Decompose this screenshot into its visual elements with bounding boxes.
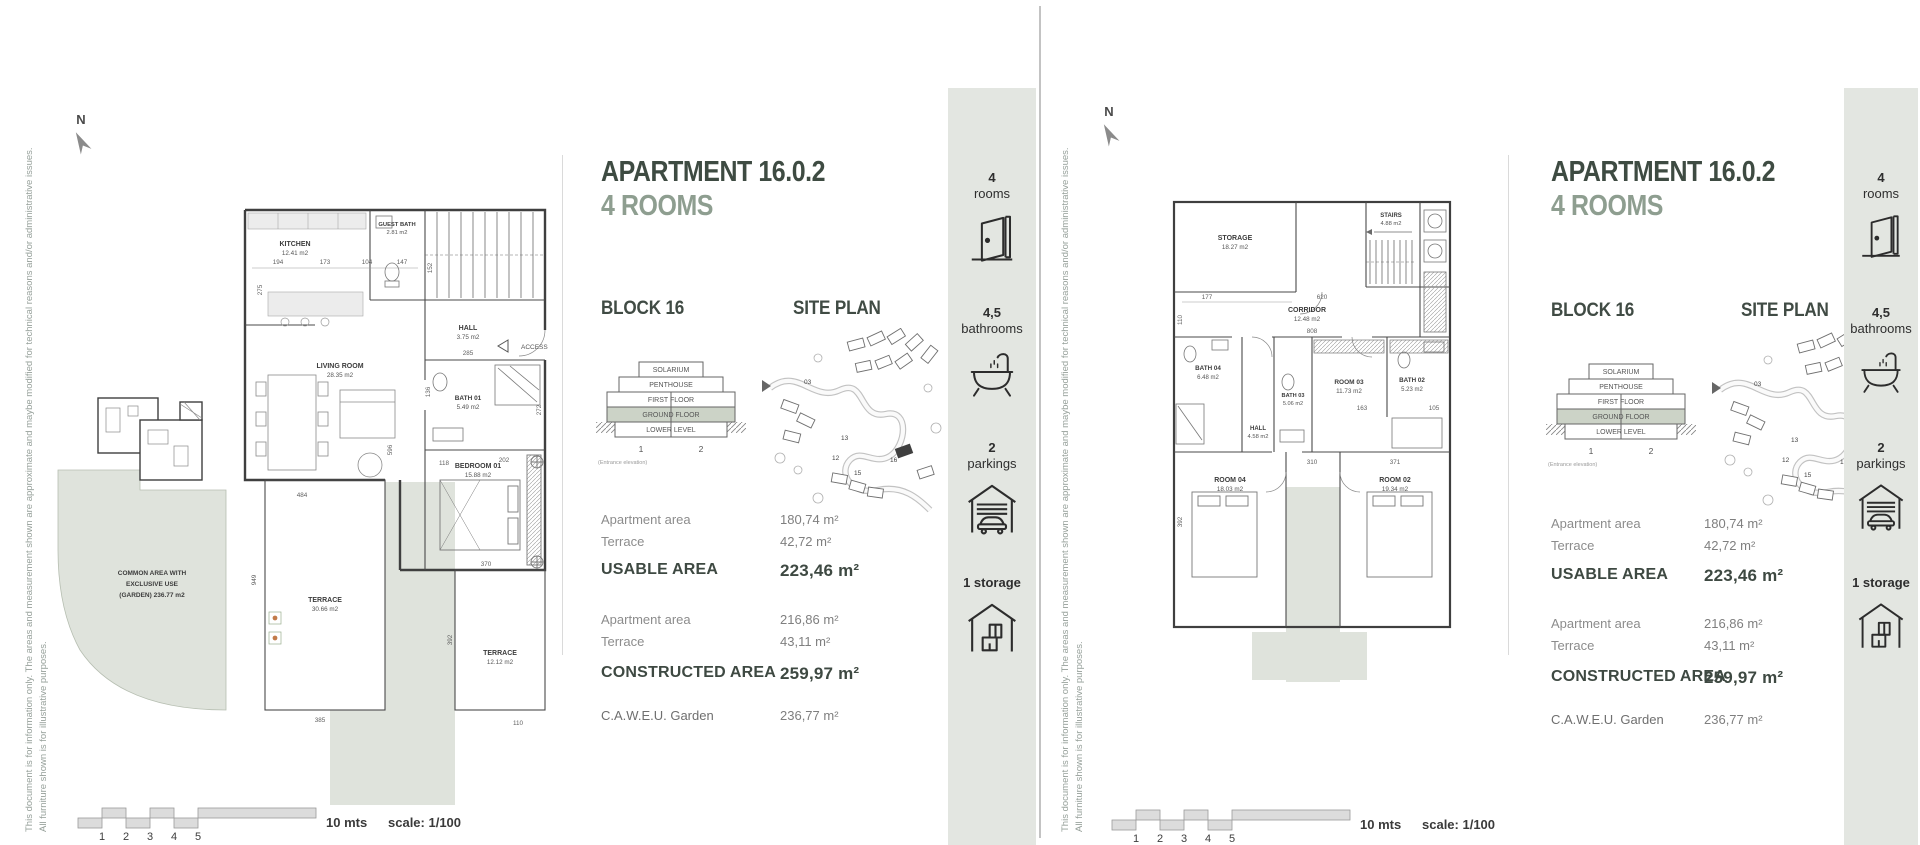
utility-closets (1424, 210, 1446, 332)
sidebar-item-parkings: 2 parkings (1844, 440, 1918, 538)
level-label: PENTHOUSE (649, 382, 693, 389)
room-area: 4.88 m2 (1381, 221, 1402, 227)
sidebar-item-bathrooms: 4,5 bathrooms (948, 305, 1036, 405)
stairs (1366, 229, 1416, 284)
site-number: 15 (1804, 472, 1812, 479)
dim: 118 (439, 460, 450, 467)
dim: 620 (1317, 294, 1328, 301)
room-label: HALL (1250, 426, 1266, 432)
parkings-count: 2 (1844, 440, 1918, 456)
brochure-spread: { "disclaimer": { "line1": "This documen… (0, 0, 1920, 845)
terrace-planters (269, 612, 281, 644)
room-label: KITCHEN (279, 241, 310, 248)
bathtub-icon (965, 344, 1019, 400)
area-value: 180,74 m² (1704, 516, 1763, 531)
room-area: 28.35 m2 (327, 372, 354, 379)
scale-ratio-label: scale: 1/100 (1422, 817, 1495, 832)
bathrooms-label: bathrooms (948, 321, 1036, 337)
page-crease (1039, 6, 1041, 838)
scale-tick: 1 (99, 831, 105, 842)
storage-icon (1855, 598, 1907, 652)
disclaimer-line2: All furniture shown is for illustrative … (1074, 641, 1085, 832)
room-label: ROOM 02 (1379, 477, 1411, 484)
area-label: Apartment area (1551, 516, 1641, 531)
garage-icon (964, 479, 1020, 537)
wardrobe (1314, 340, 1384, 353)
area-row: Terrace 43,11 m² (601, 634, 644, 649)
parkings-count: 2 (948, 440, 1036, 456)
kitchen-fixtures (248, 213, 366, 326)
area-row: Apartment area 216,86 m² (1551, 616, 1641, 631)
ground-floor-plan: ACCESS KITCHEN 12.41 m2 GUEST BATH 2.81 … (40, 150, 560, 810)
unit-number: 2 (699, 444, 704, 454)
dim: 949 (251, 574, 258, 585)
site-number: 15 (854, 470, 862, 477)
dim: 163 (1357, 405, 1368, 412)
room-area: 11.73 m2 (1336, 388, 1362, 395)
usable-area-row: USABLE AREA 223,46 m² (1551, 566, 1668, 584)
garden-label: C.A.W.E.U. Garden (601, 708, 714, 723)
page-subtitle: 4 ROOMS (1551, 190, 1663, 223)
common-area-label: (GARDEN) 236.77 m2 (119, 592, 185, 599)
scale-tick: 2 (1157, 833, 1163, 844)
room-label: GUEST BATH (378, 222, 415, 228)
garden-value: 236,77 m² (1704, 712, 1763, 727)
area-value: 43,11 m² (1704, 638, 1754, 653)
ground-hatch (727, 422, 746, 433)
dim: 808 (1307, 328, 1318, 335)
area-row: Terrace 43,11 m² (1551, 638, 1594, 653)
scale-tick: 4 (1205, 833, 1211, 844)
dim: 110 (513, 720, 524, 727)
rooms-label: rooms (948, 186, 1036, 202)
room-label: TERRACE (308, 597, 342, 604)
parkings-label: parkings (1844, 456, 1918, 472)
room-area: 12.12 m2 (487, 659, 514, 666)
dim: 310 (1307, 459, 1318, 466)
area-value: 216,86 m² (780, 612, 839, 627)
room-area: 6.48 m2 (1197, 375, 1219, 381)
dim: 392 (1177, 516, 1184, 527)
bathrooms-count: 4,5 (1844, 305, 1918, 321)
garden-value: 236,77 m² (780, 708, 839, 723)
bath01-fixtures (433, 365, 540, 441)
room-area: 5.23 m2 (1401, 387, 1423, 393)
door-icon (1856, 209, 1906, 261)
common-area-label: COMMON AREA WITH (118, 570, 187, 577)
scale-tick: 5 (1229, 833, 1235, 844)
dim: 194 (273, 259, 284, 266)
unit-number: 2 (1649, 446, 1654, 456)
storage-icon (964, 598, 1020, 656)
site-number: 13 (841, 435, 849, 442)
room-label: LIVING ROOM (316, 363, 363, 370)
scale-ratio-label: scale: 1/100 (388, 815, 461, 830)
stairs (425, 212, 545, 298)
amenities-sidebar: 4 rooms 4,5 bathrooms 2 parkings (1844, 88, 1918, 845)
room-label: HALL (459, 325, 478, 332)
usable-area-label: USABLE AREA (1551, 566, 1668, 583)
room-label: BATH 03 (1282, 393, 1305, 399)
rooms-count: 4 (1844, 170, 1918, 186)
dim: 110 (1177, 314, 1184, 325)
upper-floor-plan: STORAGE 18.27 m2 STAIRS 4.88 m2 CORRIDOR… (1162, 192, 1462, 702)
usable-area-row: USABLE AREA 223,46 m² (601, 561, 718, 579)
level-label: LOWER LEVEL (646, 427, 696, 434)
dim: 136 (425, 386, 432, 397)
room-label: ROOM 03 (1334, 379, 1364, 386)
level-label: SOLARIUM (1603, 369, 1640, 376)
room-area: 4.58 m2 (1248, 434, 1269, 440)
room-area: 19.34 m2 (1382, 486, 1409, 493)
garden-inset-plan (98, 398, 202, 480)
room-area: 5.06 m2 (1283, 401, 1303, 407)
unit-number: 1 (639, 444, 644, 454)
scale-tick: 2 (123, 831, 129, 842)
area-value: 42,72 m² (1704, 538, 1755, 553)
dim: 385 (315, 717, 326, 724)
room-area: 5.49 m2 (457, 404, 480, 411)
usable-area-label: USABLE AREA (601, 561, 718, 578)
unit-number: 1 (1589, 446, 1594, 456)
garden-row: C.A.W.E.U. Garden 236,77 m² (601, 708, 714, 723)
level-label: LOWER LEVEL (1596, 429, 1646, 436)
living-room-furniture (256, 375, 395, 477)
level-label: FIRST FLOOR (648, 397, 694, 404)
area-label: Terrace (601, 534, 644, 549)
area-row: Apartment area 180,74 m² (601, 512, 691, 527)
room-label: BATH 02 (1399, 377, 1425, 384)
room-label: ROOM 04 (1214, 477, 1246, 484)
garden-label: C.A.W.E.U. Garden (1551, 712, 1664, 727)
column-rule (1508, 155, 1509, 655)
column-rule (562, 155, 563, 655)
door-icon (965, 209, 1019, 265)
site-arrow-icon (762, 380, 771, 392)
dim: 275 (257, 284, 264, 295)
site-arrow-icon (1712, 382, 1721, 394)
area-label: Terrace (601, 634, 644, 649)
north-label: N (1094, 104, 1124, 119)
block-section-diagram: SOLARIUM PENTHOUSE FIRST FLOOR GROUND FL… (1546, 360, 1696, 470)
siteplan-heading: SITE PLAN (1741, 300, 1829, 322)
dim: 173 (320, 259, 331, 266)
dim: 177 (1202, 294, 1213, 301)
constructed-area-label: CONSTRUCTED AREA (601, 664, 776, 681)
constructed-area-label: CONSTRUCTED AREA (1551, 668, 1726, 685)
garage-icon (1855, 479, 1907, 533)
area-value: 43,11 m² (780, 634, 830, 649)
constructed-area-value: 259,97 m² (1704, 668, 1783, 688)
bathroom-fixtures (1176, 340, 1444, 448)
access-arrow-icon (498, 330, 545, 356)
room-area: 12.41 m2 (282, 250, 309, 257)
area-value: 180,74 m² (780, 512, 839, 527)
site-number: 12 (1782, 457, 1790, 464)
site-number: 12 (832, 455, 840, 462)
siteplan-heading: SITE PLAN (793, 298, 881, 320)
level-label: PENTHOUSE (1599, 384, 1643, 391)
scale-bar: 1 2 3 4 5 10 mts scale: 1/100 (70, 800, 470, 842)
garden-row: C.A.W.E.U. Garden 236,77 m² (1551, 712, 1664, 727)
site-number: 03 (804, 379, 812, 386)
ground-hatch (596, 422, 615, 433)
block-heading: BLOCK 16 (601, 298, 684, 320)
room-area: 18.27 m2 (1222, 244, 1249, 251)
dim: 104 (362, 259, 373, 266)
sidebar-item-storage: 1 storage (948, 575, 1036, 661)
page-right: This document is for information only. T… (1044, 0, 1920, 845)
room-label: TERRACE (483, 650, 517, 657)
constructed-area-value: 259,97 m² (780, 664, 859, 684)
dim: 392 (447, 634, 454, 645)
area-value: 42,72 m² (780, 534, 831, 549)
sidebar-item-parkings: 2 parkings (948, 440, 1036, 542)
site-number: 13 (1791, 437, 1799, 444)
dim: 105 (1429, 405, 1440, 412)
room-area: 2.81 m2 (387, 230, 408, 236)
page-title: APARTMENT 16.0.2 (601, 157, 825, 187)
level-label: GROUND FLOOR (1592, 414, 1649, 421)
scale-tick: 4 (171, 831, 177, 842)
room-label: CORRIDOR (1288, 307, 1326, 314)
area-row: Apartment area 216,86 m² (601, 612, 691, 627)
sidebar-item-rooms: 4 rooms (1844, 170, 1918, 266)
dim: 484 (297, 492, 308, 499)
area-row: Terrace 42,72 m² (1551, 538, 1594, 553)
room-area: 18.03 m2 (1217, 486, 1244, 493)
usable-area-value: 223,46 m² (780, 561, 859, 581)
site-number: 16 (890, 457, 898, 464)
page-title: APARTMENT 16.0.2 (1551, 157, 1775, 187)
bedroom-furniture (440, 455, 543, 568)
dim: 272 (536, 404, 543, 415)
plan-shaded-area (330, 482, 455, 805)
room-label: BATH 01 (455, 395, 482, 402)
compass-needle-icon (1096, 119, 1122, 153)
disclaimer-text: This document is for information only. T… (1059, 132, 1089, 832)
garden-inset-shade (58, 470, 226, 710)
plan-shaded-area (1252, 632, 1367, 680)
scale-tick: 1 (1133, 833, 1139, 844)
scale-tick: 3 (147, 831, 153, 842)
storage-count: 1 storage (948, 575, 1036, 591)
dim: 596 (387, 444, 394, 455)
common-area-label: EXCLUSIVE USE (126, 581, 179, 588)
room-label: STAIRS (1380, 213, 1402, 219)
dim: 202 (499, 457, 510, 464)
dim: 285 (463, 350, 474, 357)
area-label: Apartment area (601, 612, 691, 627)
area-row: Terrace 42,72 m² (601, 534, 644, 549)
level-label: FIRST FLOOR (1598, 399, 1644, 406)
room-area: 15.88 m2 (465, 472, 492, 479)
rooms-label: rooms (1844, 186, 1918, 202)
room-area: 30.66 m2 (312, 606, 339, 613)
site-number: 03 (1754, 381, 1762, 388)
level-label: SOLARIUM (653, 367, 690, 374)
corner-plant-icon (531, 556, 543, 568)
dim: 370 (481, 561, 492, 568)
block-heading: BLOCK 16 (1551, 300, 1634, 322)
constructed-area-row: CONSTRUCTED AREA 259,97 m² (1551, 668, 1726, 686)
parkings-label: parkings (948, 456, 1036, 472)
area-value: 216,86 m² (1704, 616, 1763, 631)
bathrooms-label: bathrooms (1844, 321, 1918, 337)
room-area: 3.75 m2 (457, 334, 480, 341)
disclaimer-line1: This document is for information only. T… (24, 147, 35, 832)
scale-tick: 5 (195, 831, 201, 842)
scale-length-label: 10 mts (1360, 817, 1401, 832)
scale-length-label: 10 mts (326, 815, 367, 830)
area-label: Apartment area (601, 512, 691, 527)
area-label: Terrace (1551, 538, 1594, 553)
room-label: BATH 04 (1195, 365, 1221, 372)
usable-area-value: 223,46 m² (1704, 566, 1783, 586)
bathrooms-count: 4,5 (948, 305, 1036, 321)
dim: 147 (397, 259, 408, 266)
access-label: ACCESS (521, 344, 548, 351)
dim: 152 (427, 262, 434, 273)
north-compass: N (1094, 104, 1124, 158)
scale-tick: 3 (1181, 833, 1187, 844)
trees (775, 354, 941, 503)
amenities-sidebar: 4 rooms 4,5 bathrooms 2 parkings (948, 88, 1036, 845)
room-label: BEDROOM 01 (455, 463, 501, 470)
room-label: STORAGE (1218, 235, 1253, 242)
disclaimer-line1: This document is for information only. T… (1060, 147, 1071, 832)
constructed-area-row: CONSTRUCTED AREA 259,97 m² (601, 664, 776, 682)
siteplan-map: 03 13 12 15 16 (758, 328, 948, 523)
dim: 371 (1390, 459, 1401, 466)
block-note: (Entrance elevation) (598, 460, 647, 466)
bathtub-icon (1856, 344, 1906, 396)
sidebar-item-rooms: 4 rooms (948, 170, 1036, 270)
rooms-count: 4 (948, 170, 1036, 186)
page-left: This document is for information only. T… (0, 0, 1040, 845)
corner-plant-icon (531, 456, 543, 468)
scale-bar: 1 2 3 4 5 10 mts scale: 1/100 (1104, 802, 1504, 844)
north-label: N (66, 112, 96, 127)
storage-count: 1 storage (1844, 575, 1918, 591)
room-area: 12.48 m2 (1294, 316, 1321, 323)
sidebar-item-bathrooms: 4,5 bathrooms (1844, 305, 1918, 401)
block-note: (Entrance elevation) (1548, 462, 1597, 468)
area-label: Apartment area (1551, 616, 1641, 631)
block-section-diagram: SOLARIUM PENTHOUSE FIRST FLOOR GROUND FL… (596, 358, 746, 468)
area-label: Terrace (1551, 638, 1594, 653)
page-subtitle: 4 ROOMS (601, 190, 713, 223)
level-label: GROUND FLOOR (642, 412, 699, 419)
sidebar-item-storage: 1 storage (1844, 575, 1918, 657)
area-row: Apartment area 180,74 m² (1551, 516, 1641, 531)
